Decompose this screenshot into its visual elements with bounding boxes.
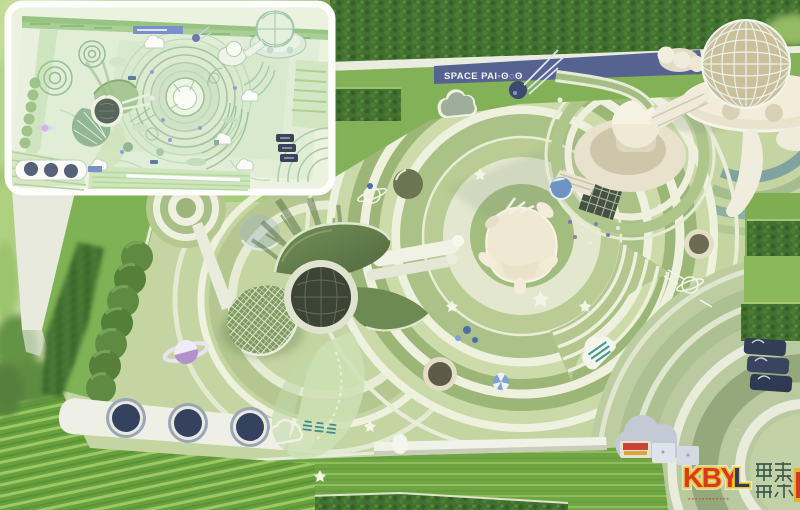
svg-text:▪▪▪▪▪▪▪▪▪▪▪▪: ▪▪▪▪▪▪▪▪▪▪▪▪ <box>688 496 730 503</box>
svg-text:SPACE PAI◦ʘ◌ʘ: SPACE PAI◦ʘ◌ʘ <box>444 71 523 82</box>
svg-text:KBY: KBY <box>683 462 739 493</box>
svg-text:L: L <box>733 462 750 493</box>
